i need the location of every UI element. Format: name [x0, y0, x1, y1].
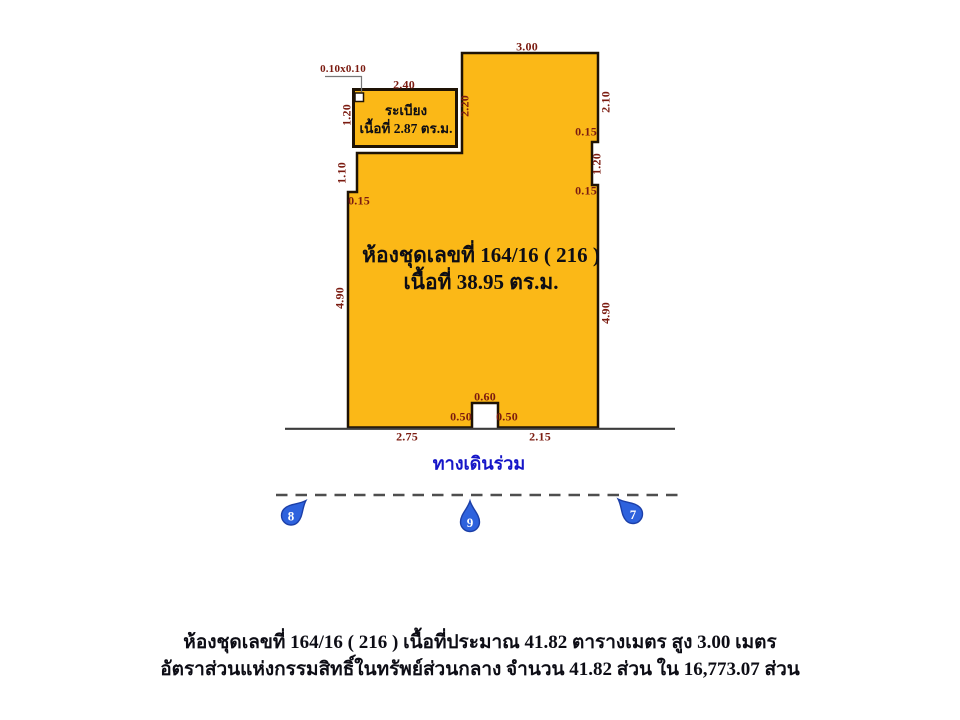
dim-label-right-notch: 1.20 — [590, 153, 605, 175]
marker-8-pin — [278, 494, 313, 529]
dim-label-bottom-right: 2.15 — [529, 430, 551, 445]
dim-label-right-lower: 4.90 — [599, 302, 614, 324]
dim-label-bottom-left: 2.75 — [396, 430, 418, 445]
balcony-name: ระเบียง — [360, 102, 453, 120]
floor-plan-svg: 8 9 7 — [0, 0, 960, 720]
footer-line-1: ห้องชุดเลขที่ 164/16 ( 216 ) เนื้อที่ประ… — [0, 629, 960, 656]
marker-7-number: 7 — [630, 507, 637, 522]
dim-label-door-width: 0.60 — [474, 390, 496, 405]
dim-label-right-upper: 2.10 — [599, 91, 614, 113]
dim-label-tower-left: 2.20 — [458, 95, 473, 117]
dim-label-left-upper: 1.10 — [335, 162, 350, 184]
dim-label-left-lower: 4.90 — [333, 287, 348, 309]
dim-label-balcony-height: 1.20 — [340, 104, 355, 126]
balcony-area-label: ระเบียง เนื้อที่ 2.87 ตร.ม. — [360, 102, 453, 138]
unit-area-label: ห้องชุดเลขที่ 164/16 ( 216 ) เนื้อที่ 38… — [362, 242, 600, 296]
dim-label-door-right: 0.50 — [496, 410, 518, 425]
dim-label-top-width: 3.00 — [516, 40, 538, 55]
unit-number: ห้องชุดเลขที่ 164/16 ( 216 ) — [362, 242, 600, 269]
footer-line-2: อัตราส่วนแห่งกรรมสิทธิ์ในทรัพย์ส่วนกลาง … — [0, 656, 960, 683]
dim-label-door-left: 0.50 — [450, 410, 472, 425]
column-square — [355, 93, 364, 102]
marker-8-number: 8 — [288, 509, 295, 524]
dim-label-left-step: 0.15 — [348, 194, 370, 209]
dim-label-balcony-width: 2.40 — [393, 78, 415, 93]
marker-9-number: 9 — [467, 515, 474, 530]
unit-area: เนื้อที่ 38.95 ตร.ม. — [362, 269, 600, 296]
dim-label-right-notch-top: 0.15 — [575, 125, 597, 140]
walkway-label: ทางเดินร่วม — [433, 449, 526, 478]
floor-plan-page: 8 9 7 0.10x0.10 2.40 1.20 2.20 3.00 2.10… — [0, 0, 960, 720]
dim-label-column: 0.10x0.10 — [320, 63, 366, 75]
footer-description: ห้องชุดเลขที่ 164/16 ( 216 ) เนื้อที่ประ… — [0, 629, 960, 683]
balcony-area: เนื้อที่ 2.87 ตร.ม. — [360, 120, 453, 138]
dim-label-right-notch-bottom: 0.15 — [575, 184, 597, 199]
